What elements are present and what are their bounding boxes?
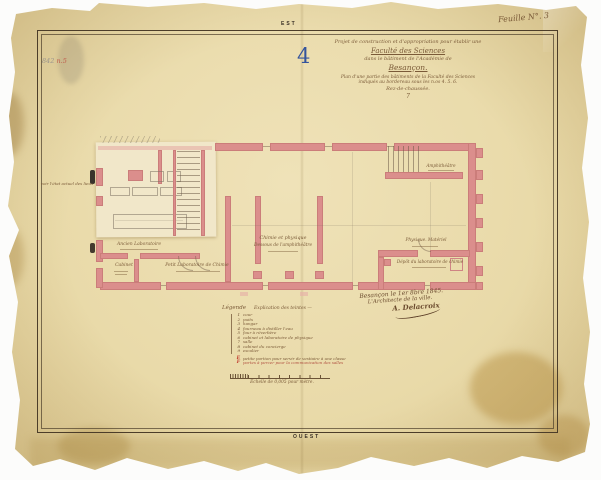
label-ancien-laboratoire: Ancien Laboratoire bbox=[110, 242, 168, 247]
legend-subheading: Explication des teintes — bbox=[254, 306, 312, 311]
legend-item-text: escalier bbox=[243, 349, 259, 354]
scale-fine-ticks bbox=[230, 374, 248, 379]
right-wall bbox=[468, 143, 476, 290]
legend: Légende Explication des teintes — 1cour … bbox=[222, 305, 382, 366]
label-underline bbox=[412, 267, 446, 268]
door-sill bbox=[353, 285, 358, 286]
door-sill bbox=[425, 285, 430, 286]
staircase-left bbox=[177, 151, 200, 235]
partition-wall bbox=[317, 196, 323, 264]
pilaster bbox=[476, 218, 483, 228]
label-scribble bbox=[114, 271, 128, 272]
patch-bench bbox=[110, 187, 130, 196]
legend-red-text: portes à percer pour la communication de… bbox=[243, 361, 343, 366]
window-sill bbox=[325, 146, 332, 147]
label-amphitheatre: Amphithéâtre bbox=[418, 164, 464, 169]
pier bbox=[285, 271, 294, 279]
label-exterior-note: voir l'état actuel des lieux bbox=[36, 182, 98, 187]
partition-wall bbox=[225, 196, 231, 282]
label-underline bbox=[120, 249, 158, 250]
left-wall bbox=[96, 196, 103, 206]
pier bbox=[253, 271, 262, 279]
label-underline bbox=[268, 251, 298, 252]
legend-item-num: 9 bbox=[235, 349, 240, 354]
bottom-wall bbox=[268, 282, 353, 290]
scale-label: Échelle de 0,005 pour mètre. bbox=[244, 381, 320, 386]
fixture bbox=[384, 259, 391, 266]
stair-wall bbox=[201, 150, 205, 236]
label-underline bbox=[412, 246, 438, 247]
patch-bench bbox=[132, 187, 158, 196]
legend-red-letter: F bbox=[235, 361, 240, 366]
title-line-4: Besançon. bbox=[320, 64, 496, 73]
label-scribble bbox=[115, 274, 127, 275]
archive-note: 842 n.5 bbox=[42, 57, 67, 65]
label-cabinet: Cabinet bbox=[108, 263, 140, 268]
ink-blot bbox=[90, 243, 95, 253]
door-sill bbox=[161, 285, 166, 286]
pilaster bbox=[476, 242, 483, 252]
pencil-extension-lines bbox=[100, 136, 160, 143]
title-line-6: indiqués au bordereau sous les n.os 4. 5… bbox=[320, 80, 496, 85]
scale-major-ticks bbox=[248, 375, 330, 379]
archive-note-gray: 842 bbox=[42, 57, 54, 65]
legend-red-item: Fportes à percer pour la communication d… bbox=[235, 361, 382, 366]
title-line-7: Rez-de-chaussée. bbox=[320, 87, 496, 93]
title-paraph-mark: 7 bbox=[320, 94, 496, 101]
patch-furniture-pink bbox=[128, 170, 143, 181]
label-depot: Dépôt du laboratoire de chimie bbox=[396, 260, 464, 265]
patch-top-wall bbox=[98, 146, 212, 150]
archive-note-red: n.5 bbox=[57, 57, 67, 65]
title-line-1: Projet de construction et d'appropriatio… bbox=[320, 40, 496, 46]
label-room-center-2: Dessous de l'amphithéâtre bbox=[248, 244, 318, 249]
staircase-right bbox=[388, 146, 422, 172]
label-physique: Physique. Matériel bbox=[400, 239, 452, 244]
pilaster bbox=[476, 266, 483, 276]
label-room-center-1: Chimie et physique bbox=[252, 236, 314, 242]
top-wall bbox=[215, 143, 263, 151]
pier bbox=[315, 271, 324, 279]
room-wall bbox=[430, 250, 470, 257]
pilaster bbox=[476, 194, 483, 204]
window-sill bbox=[263, 146, 270, 147]
room-wall bbox=[378, 250, 418, 257]
legend-heading: Légende bbox=[222, 305, 246, 311]
construction-line bbox=[352, 152, 353, 282]
label-petit-laboratoire: Petit Laboratoire de Chimie bbox=[158, 263, 236, 268]
exterior-step bbox=[300, 292, 308, 296]
label-underline bbox=[176, 271, 220, 272]
legend-bracket-line bbox=[231, 314, 232, 354]
interior-bar-wall bbox=[385, 172, 463, 179]
stair-wall bbox=[173, 150, 176, 236]
plan-number: 4 bbox=[297, 44, 310, 68]
scale-bar: Échelle de 0,005 pour mètre. bbox=[230, 372, 334, 390]
bottom-wall bbox=[100, 282, 161, 290]
legend-item-text: cabinet et laboratoire de physique bbox=[243, 336, 313, 341]
title-block: Projet de construction et d'appropriatio… bbox=[320, 40, 496, 101]
title-line-2: Faculté des Sciences bbox=[320, 47, 496, 55]
bottom-wall bbox=[166, 282, 263, 290]
title-line-3: dans le bâtiment de l'Académie de bbox=[320, 57, 496, 63]
top-wall bbox=[270, 143, 325, 151]
construction-line bbox=[232, 225, 466, 226]
room-wall bbox=[100, 253, 128, 259]
left-wall bbox=[96, 268, 103, 288]
pilaster bbox=[476, 170, 483, 180]
door-sill bbox=[263, 285, 268, 286]
partition-wall bbox=[255, 196, 261, 264]
label-underline bbox=[428, 170, 454, 171]
top-wall bbox=[332, 143, 387, 151]
compass-label-ouest: OUEST bbox=[293, 434, 320, 440]
pilaster bbox=[476, 148, 483, 158]
legend-item: 9escalier bbox=[235, 349, 382, 354]
scanned-paper-sheet: EST OUEST Feuille N°. 3 842 n.5 4 Projet… bbox=[0, 0, 601, 480]
exterior-step bbox=[240, 292, 248, 296]
compass-label-est: EST bbox=[281, 21, 297, 27]
patch-furniture bbox=[150, 171, 164, 182]
